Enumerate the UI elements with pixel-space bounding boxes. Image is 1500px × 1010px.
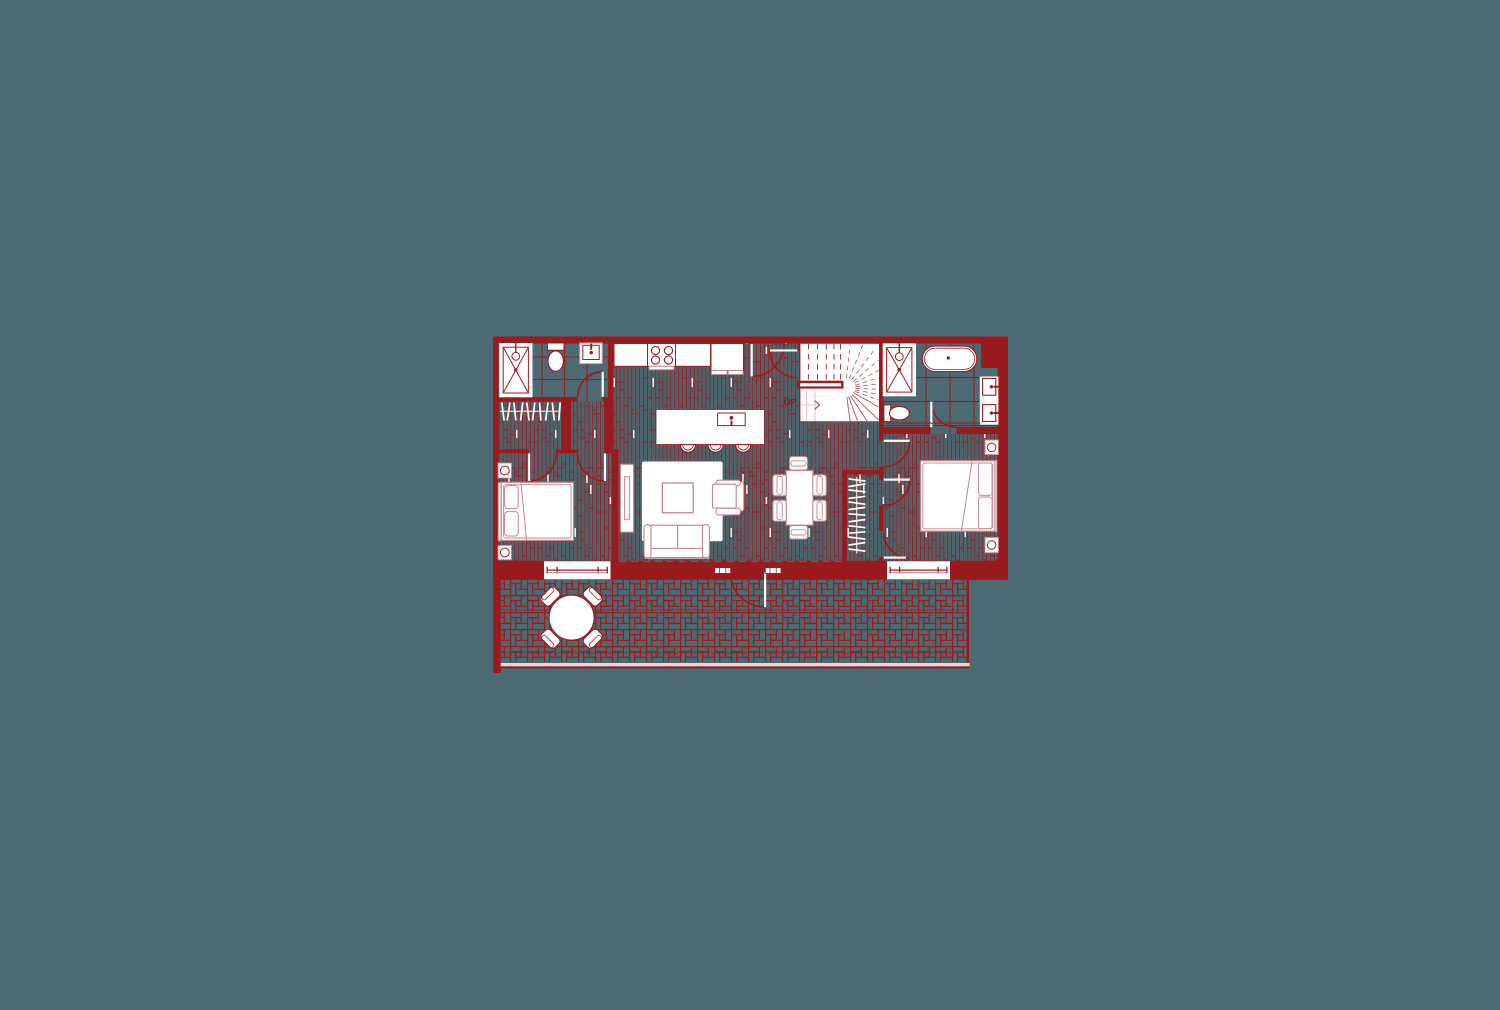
svg-text:UP: UP <box>784 397 796 407</box>
